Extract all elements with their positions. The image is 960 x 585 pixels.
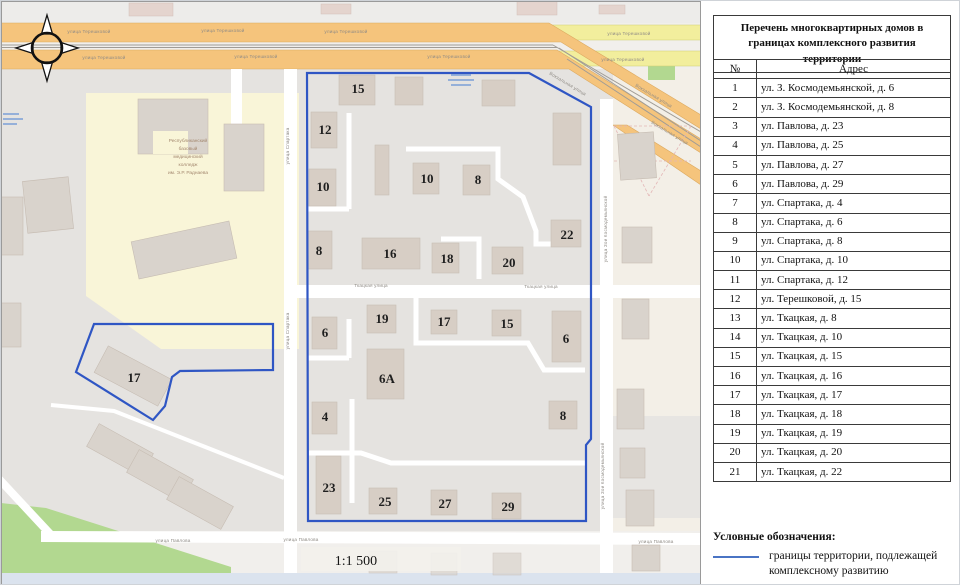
- cell-address: ул. Ткацкая, д. 17: [757, 386, 951, 405]
- cell-number: 1: [714, 79, 757, 98]
- college-label-line: колледж: [179, 163, 199, 168]
- street-name-label: улица Павлова: [284, 537, 319, 542]
- bottom-bar: [1, 573, 701, 585]
- street-name-label: улица Зои Космодемьянской: [602, 196, 608, 263]
- building-number-label: 22: [561, 227, 574, 242]
- header-addr: Адрес: [757, 60, 951, 79]
- cell-address: ул. Ткацкая, д. 18: [757, 405, 951, 424]
- info-panel: Перечень многоквартирных домов в граница…: [701, 1, 960, 585]
- building-number-label: 8: [316, 243, 323, 258]
- building-number-label: 8: [475, 172, 482, 187]
- cell-number: 3: [714, 117, 757, 136]
- cell-address: ул. Павлова, д. 23: [757, 117, 951, 136]
- cell-number: 13: [714, 309, 757, 328]
- table-row: 21ул. Ткацкая, д. 22: [714, 462, 951, 481]
- cell-number: 14: [714, 328, 757, 347]
- building-number-label: 20: [503, 255, 516, 270]
- cell-address: ул. Ткацкая, д. 20: [757, 443, 951, 462]
- building-number-label: 6А: [379, 371, 396, 386]
- scale-backing: [301, 547, 461, 571]
- street-name-label: улица Спартака: [285, 312, 290, 349]
- cell-address: ул. Спартака, д. 6: [757, 213, 951, 232]
- building-number-label: 19: [376, 311, 390, 326]
- cell-number: 12: [714, 290, 757, 309]
- cell-number: 2: [714, 98, 757, 117]
- cell-number: 18: [714, 405, 757, 424]
- table-row: 14ул. Ткацкая, д. 10: [714, 328, 951, 347]
- street-name-label: улица Спартака: [285, 127, 290, 164]
- header-num: №: [714, 60, 757, 79]
- cell-number: 16: [714, 367, 757, 386]
- building-number-label: 6: [563, 331, 570, 346]
- cell-number: 20: [714, 443, 757, 462]
- cell-number: 6: [714, 175, 757, 194]
- cell-address: ул. Терешковой, д. 15: [757, 290, 951, 309]
- table-row: 1ул. З. Космодемьянской, д. 6: [714, 79, 951, 98]
- street-name-label: улица Терешковой: [67, 28, 110, 34]
- table-header-row: № Адрес: [714, 60, 951, 79]
- cell-address: ул. Спартака, д. 10: [757, 251, 951, 270]
- table-row: 4ул. Павлова, д. 25: [714, 136, 951, 155]
- cell-address: ул. З. Космодемьянской, д. 8: [757, 98, 951, 117]
- building-number-label: 16: [384, 246, 398, 261]
- building-number-label: 29: [502, 499, 516, 514]
- table-row: 19ул. Ткацкая, д. 19: [714, 424, 951, 443]
- cell-address: ул. Спартака, д. 12: [757, 271, 951, 290]
- building-number-label: 10: [421, 171, 434, 186]
- table-row: 10ул. Спартака, д. 10: [714, 251, 951, 270]
- table-row: 17ул. Ткацкая, д. 17: [714, 386, 951, 405]
- college-label-line: медицинский: [173, 153, 203, 160]
- cell-number: 17: [714, 386, 757, 405]
- legend-row: границы территории, подлежащей комплексн…: [713, 549, 957, 579]
- street-name-label: улица Терешковой: [601, 56, 644, 62]
- street-name-label: улица Терешковой: [427, 53, 470, 59]
- building-number-label: 10: [317, 179, 330, 194]
- cell-address: ул. Павлова, д. 29: [757, 175, 951, 194]
- cell-number: 15: [714, 347, 757, 366]
- cell-address: ул. Ткацкая, д. 22: [757, 462, 951, 481]
- map-canvas: Республиканскийбазовыймедицинскийколледж…: [1, 1, 701, 585]
- street-name-label: Ткацкая улица: [354, 283, 388, 288]
- table-row: 15ул. Ткацкая, д. 15: [714, 347, 951, 366]
- legend-heading: Условные обозначения:: [713, 531, 957, 543]
- building-number-label: 17: [438, 314, 452, 329]
- cell-number: 7: [714, 194, 757, 213]
- cell-address: ул. Ткацкая, д. 16: [757, 367, 951, 386]
- boundary-line-swatch: [713, 556, 759, 558]
- screenshot-page: Республиканскийбазовыймедицинскийколледж…: [0, 0, 960, 585]
- table-row: 18ул. Ткацкая, д. 18: [714, 405, 951, 424]
- cell-address: ул. Павлова, д. 25: [757, 136, 951, 155]
- table-row: 2ул. З. Космодемьянской, д. 8: [714, 98, 951, 117]
- cell-number: 8: [714, 213, 757, 232]
- cell-address: ул. Павлова, д. 27: [757, 155, 951, 174]
- building-number-label: 25: [379, 494, 393, 509]
- street-name-label: улица Терешковой: [234, 53, 277, 59]
- building-number-label: 27: [439, 496, 453, 511]
- cell-number: 9: [714, 232, 757, 251]
- college-label-line: Республиканский: [169, 137, 208, 144]
- table-row: 8ул. Спартака, д. 6: [714, 213, 951, 232]
- table-row: 16ул. Ткацкая, д. 16: [714, 367, 951, 386]
- map-scale: 1:1 500: [335, 554, 377, 569]
- cell-number: 11: [714, 271, 757, 290]
- cell-address: ул. Спартака, д. 4: [757, 194, 951, 213]
- legend-boundary-label: границы территории, подлежащей комплексн…: [769, 549, 947, 579]
- building-number-label: 15: [501, 316, 515, 331]
- building-number-label: 23: [323, 480, 337, 495]
- street-name-label: улица Павлова: [639, 539, 674, 544]
- cell-address: ул. З. Космодемьянской, д. 6: [757, 79, 951, 98]
- cell-address: ул. Спартака, д. 8: [757, 232, 951, 251]
- building-number-label: 8: [560, 408, 567, 423]
- college-label-line: базовый: [179, 145, 198, 152]
- address-table: № Адрес 1ул. З. Космодемьянской, д. 62ул…: [713, 59, 951, 482]
- table-row: 20ул. Ткацкая, д. 20: [714, 443, 951, 462]
- table-row: 13ул. Ткацкая, д. 8: [714, 309, 951, 328]
- territory-map: Республиканскийбазовыймедицинскийколледж…: [1, 1, 701, 585]
- table-row: 6ул. Павлова, д. 29: [714, 175, 951, 194]
- building-number-label: 6: [322, 325, 329, 340]
- cell-number: 21: [714, 462, 757, 481]
- building-number-label: 4: [322, 409, 329, 424]
- college-label: Республиканскийбазовыймедицинскийколледж…: [168, 137, 208, 176]
- address-table-body: 1ул. З. Космодемьянской, д. 62ул. З. Кос…: [714, 79, 951, 482]
- street-name-label: улица Терешковой: [82, 54, 125, 60]
- cell-number: 10: [714, 251, 757, 270]
- table-row: 11ул. Спартака, д. 12: [714, 271, 951, 290]
- college-label-line: им. Э.Р. Раднаева: [168, 170, 208, 176]
- building-number-label: 18: [441, 251, 455, 266]
- street-name-label: улица Терешковой: [324, 28, 367, 34]
- cell-address: ул. Ткацкая, д. 15: [757, 347, 951, 366]
- cell-number: 4: [714, 136, 757, 155]
- legend: Условные обозначения: границы территории…: [713, 531, 957, 579]
- building-number-label: 17: [128, 370, 142, 385]
- table-row: 7ул. Спартака, д. 4: [714, 194, 951, 213]
- table-row: 3ул. Павлова, д. 23: [714, 117, 951, 136]
- table-row: 9ул. Спартака, д. 8: [714, 232, 951, 251]
- cell-address: ул. Ткацкая, д. 10: [757, 328, 951, 347]
- table-row: 12ул. Терешковой, д. 15: [714, 290, 951, 309]
- table-row: 5ул. Павлова, д. 27: [714, 155, 951, 174]
- street-name-label: улица Павлова: [156, 538, 191, 543]
- street-name-label: улица Зои Космодемьянской: [599, 443, 605, 510]
- building-number-label: 15: [352, 81, 366, 96]
- cell-address: ул. Ткацкая, д. 8: [757, 309, 951, 328]
- street-name-label: улица Терешковой: [201, 27, 244, 33]
- cell-address: ул. Ткацкая, д. 19: [757, 424, 951, 443]
- street-name-label: Ткацкая улица: [524, 284, 558, 289]
- cell-number: 5: [714, 155, 757, 174]
- building-number-label: 12: [319, 122, 332, 137]
- street-name-label: улица Терешковой: [607, 30, 650, 36]
- cell-number: 19: [714, 424, 757, 443]
